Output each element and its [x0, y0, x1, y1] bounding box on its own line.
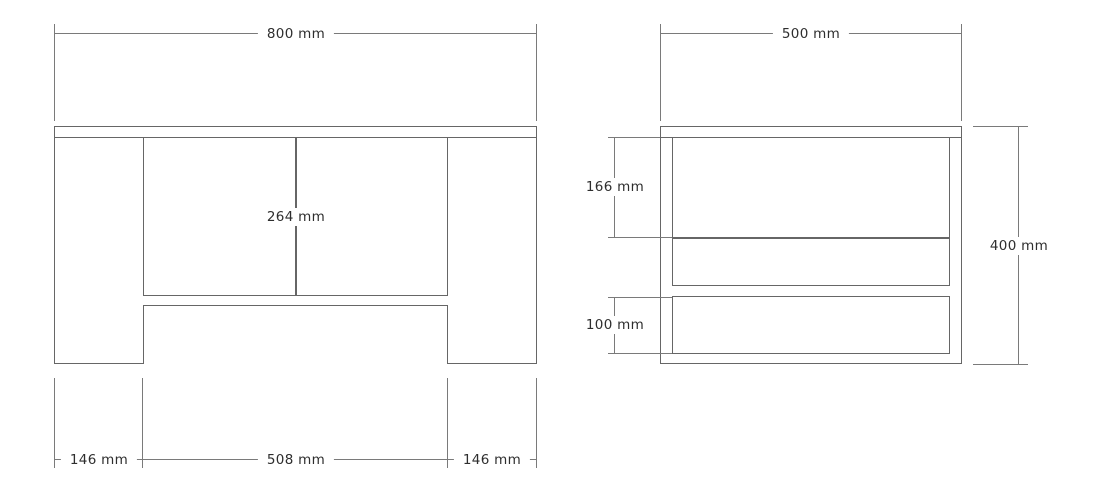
front-left-leg: [54, 137, 144, 364]
side-upper-ext-tick-top: [608, 137, 660, 138]
front-right-leg: [447, 137, 537, 364]
front-shelf: [143, 295, 448, 306]
side-height-label: 400 mm: [981, 237, 1057, 255]
front-width-ext-line-right: [536, 24, 537, 121]
side-upper-ext-tick-bottom: [608, 237, 672, 238]
side-lower-ext-tick-bottom: [608, 353, 672, 354]
front-right-leg-width-label: 146 mm: [454, 451, 530, 469]
front-bottom-ext-line-2: [142, 378, 143, 468]
front-width-label: 800 mm: [258, 25, 334, 43]
side-tabletop: [660, 126, 962, 138]
side-depth-label: 500 mm: [773, 25, 849, 43]
side-depth-ext-line-left: [660, 24, 661, 121]
front-bottom-ext-line-4: [536, 378, 537, 468]
side-height-ext-tick-top: [973, 126, 1028, 127]
side-right-leg: [949, 137, 962, 364]
front-bottom-ext-line-3: [447, 378, 448, 468]
front-shelf-height-label: 264 mm: [258, 208, 334, 226]
side-left-leg: [660, 137, 673, 364]
front-left-leg-width-label: 146 mm: [61, 451, 137, 469]
front-inner-span-label: 508 mm: [258, 451, 334, 469]
side-panel-bottom-line: [672, 237, 950, 239]
side-shelf: [672, 285, 950, 297]
technical-drawing-canvas: 800 mm 264 mm 146 mm 508 mm 146 mm 500 m…: [0, 0, 1100, 494]
side-upper-gap-label: 166 mm: [577, 178, 653, 196]
front-bottom-ext-line-1: [54, 378, 55, 468]
side-lower-ext-tick-top: [608, 297, 672, 298]
side-lower-gap-label: 100 mm: [577, 316, 653, 334]
side-height-ext-tick-bottom: [973, 364, 1028, 365]
side-depth-ext-line-right: [961, 24, 962, 121]
front-width-ext-line-left: [54, 24, 55, 121]
side-stretcher: [672, 353, 950, 364]
